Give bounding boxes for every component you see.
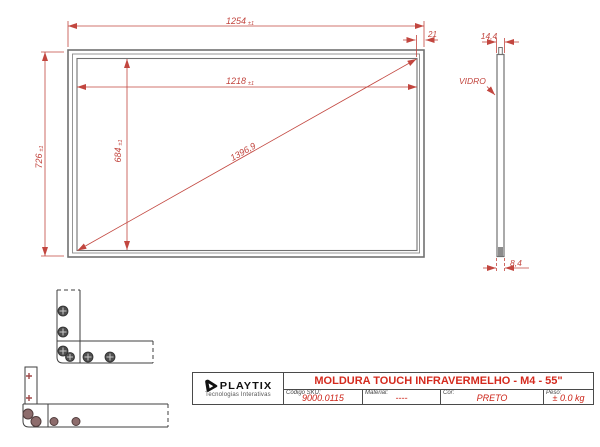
field-sku: Código SKU: 9000.0115	[284, 390, 363, 404]
title-block-right: MOLDURA TOUCH INFRAVERMELHO - M4 - 55" C…	[284, 373, 593, 404]
drawing-title: MOLDURA TOUCH INFRAVERMELHO - M4 - 55"	[284, 373, 593, 390]
glass-edge-section	[498, 247, 503, 256]
side-view	[497, 48, 504, 257]
round-screws	[23, 409, 80, 427]
dim-glass-edge: 8,4	[510, 258, 522, 268]
title-block-fields: Código SKU: 9000.0115 Material: ---- Cor…	[284, 390, 593, 404]
dim-thickness: 14,4	[481, 31, 498, 41]
corner-detail-top	[57, 290, 153, 363]
logo-subtitle: Tecnologias Interativas	[205, 392, 271, 398]
glass-label: VIDRO	[459, 76, 486, 86]
field-material-label: Material:	[365, 390, 388, 396]
playtix-play-triangle-icon	[204, 379, 218, 393]
field-color-value: PRETO	[477, 393, 508, 403]
dim-outer-width: 1254±1	[226, 16, 254, 27]
technical-drawing-page: 1254±1 21 1218±1 726±1 684±1 1396,9 14,4…	[0, 0, 600, 447]
field-weight-label: Peso:	[546, 390, 561, 396]
field-weight: Peso: ± 0.0 kg	[544, 390, 593, 404]
field-material-value: ----	[396, 393, 408, 403]
corner-detail-bottom	[23, 367, 168, 427]
logo-cell: PLAYTIX Tecnologias Interativas	[193, 373, 284, 404]
cross-screws	[26, 373, 32, 401]
title-block: PLAYTIX Tecnologias Interativas MOLDURA …	[192, 372, 594, 405]
dim-frame-border: 21	[427, 30, 437, 39]
logo-wordmark: PLAYTIX	[220, 380, 272, 391]
dim-outer-height: 726±1	[34, 145, 45, 168]
field-color: Cor: PRETO	[441, 390, 544, 404]
field-material: Material: ----	[363, 390, 441, 404]
field-color-label: Cor:	[443, 390, 454, 396]
phillips-screws	[58, 306, 115, 362]
field-sku-label: Código SKU:	[286, 390, 321, 396]
